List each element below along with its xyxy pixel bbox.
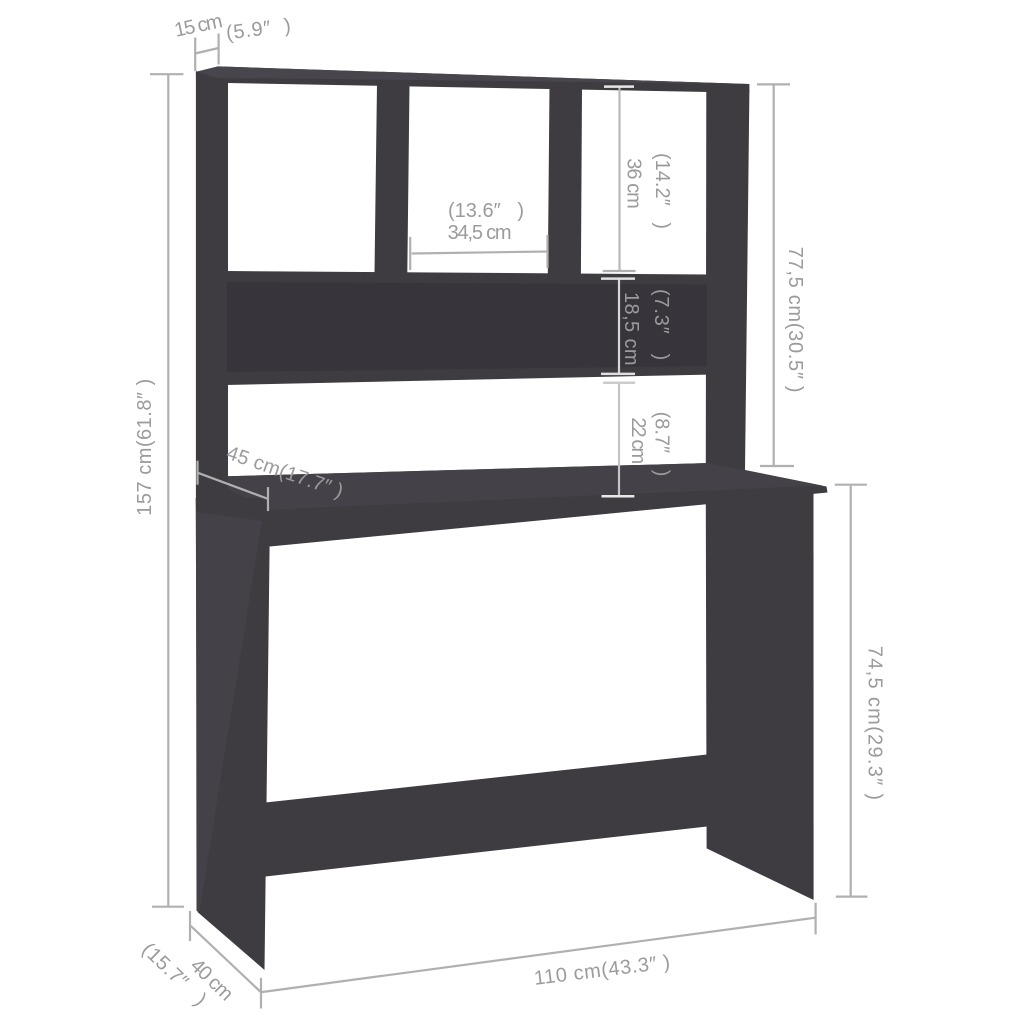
svg-text:18,5 cm: 18,5 cm — [620, 292, 642, 366]
svg-text:74,5 cm(29.3″ ): 74,5 cm(29.3″ ) — [864, 646, 886, 802]
svg-text:36 cm: 36 cm — [623, 158, 645, 208]
svg-text:(7.3″ ): (7.3″ ) — [650, 289, 672, 361]
svg-text:77,5 cm(30.5″ ): 77,5 cm(30.5″ ) — [784, 247, 806, 394]
svg-text:34,5 cm: 34,5 cm — [448, 222, 511, 244]
svg-text:157 cm(61.8″ ): 157 cm(61.8″ ) — [134, 378, 156, 515]
svg-text:22 cm: 22 cm — [627, 417, 649, 463]
svg-text:(8.7″ ): (8.7″ ) — [651, 412, 673, 477]
svg-text:(13.6″ ): (13.6″ ) — [448, 200, 524, 222]
svg-text:(14.2″ ): (14.2″ ) — [651, 153, 673, 229]
